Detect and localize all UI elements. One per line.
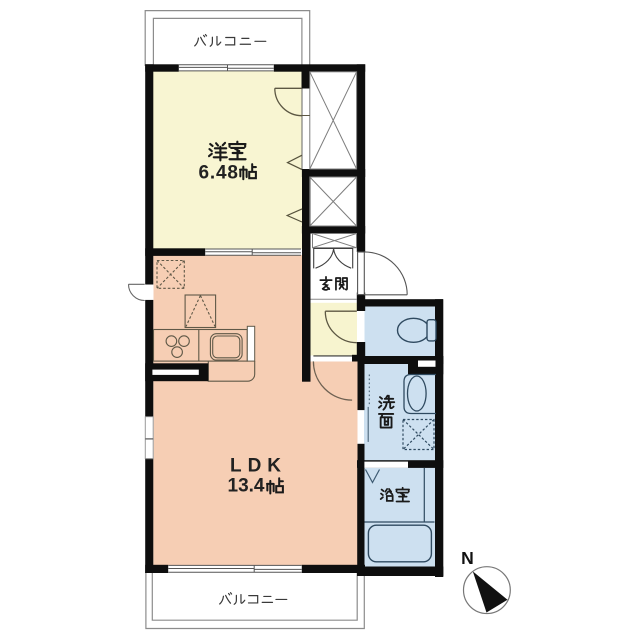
svg-text:6.48: 6.48 bbox=[199, 163, 239, 184]
svg-text:LDK: LDK bbox=[230, 455, 287, 476]
svg-text:N: N bbox=[461, 548, 474, 568]
svg-text:13.4: 13.4 bbox=[228, 476, 265, 497]
